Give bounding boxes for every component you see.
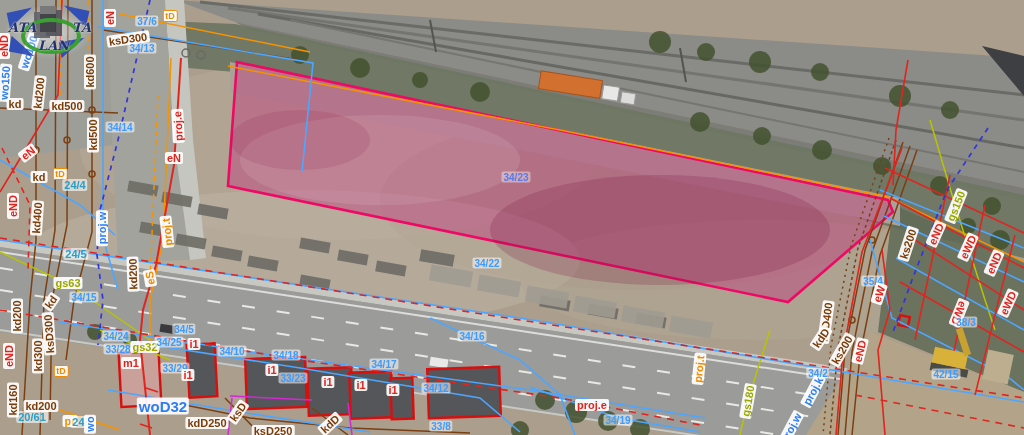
building-i1 (307, 367, 353, 416)
logo-text-bottom: LAN (38, 38, 69, 53)
logo-text-left: ATA (8, 20, 36, 35)
building-i1 (349, 371, 393, 418)
spoil-heap-shading (490, 175, 830, 285)
logo-text-right: TA (72, 20, 91, 35)
spoil-heap-shading (230, 110, 370, 170)
map-layers (0, 0, 1024, 435)
map-canvas[interactable]: eNeNDksD30034/1337/6tDwo100wo150kd600kdk… (0, 0, 1024, 435)
app-logo-watermark: ATA TA LAN (0, 0, 118, 70)
building-i1 (427, 367, 501, 418)
